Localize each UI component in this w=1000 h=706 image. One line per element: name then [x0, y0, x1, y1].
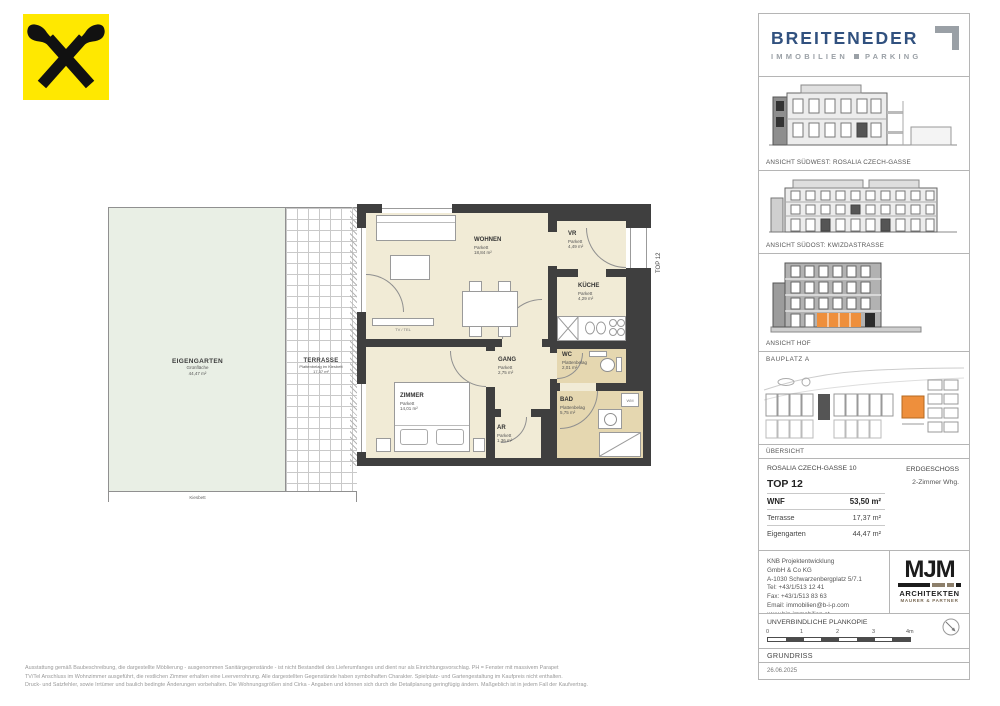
siteplan-caption: ÜBERSICHT: [766, 448, 804, 455]
garden-area: [109, 208, 286, 491]
breiteneder-name: BREITENEDER: [771, 28, 957, 49]
window-top: [382, 204, 452, 213]
elevation-hof-drawing: [765, 257, 961, 339]
label-vr: VRParkett4,49 m²: [568, 231, 583, 250]
contact-email[interactable]: Email: immobilien@b-i-p.com: [767, 602, 883, 611]
mjm-line2: MAURER & PARTNER: [890, 598, 969, 603]
terrace-area: [286, 208, 357, 491]
toilet-tank: [616, 357, 622, 372]
washing-machine: WM: [621, 393, 639, 407]
tv-tel-label: TV / TEL: [372, 327, 434, 332]
nightstand: [376, 438, 391, 452]
title-block-panel: BREITENEDER IMMOBILIEN PARKING: [758, 14, 970, 680]
gravel-strip: Kiesbett: [109, 491, 356, 502]
date-box: 26.06.2025: [758, 662, 970, 680]
contact-box: KNB Projektentwicklung GmbH & Co KG A-10…: [758, 550, 970, 614]
outdoor-area: EIGENGARTEN Grünfläche 44,47 m² TERRASSE…: [108, 207, 357, 502]
raiffeisen-logo: [22, 14, 110, 100]
wnf-value: 53,50 m²: [850, 497, 881, 506]
separator-square-icon: [854, 54, 859, 59]
elevation-hof: ANSICHT HOF: [758, 253, 970, 352]
breiteneder-logo-box: BREITENEDER IMMOBILIEN PARKING: [758, 13, 970, 77]
opening-gang-ar: [501, 409, 531, 417]
mjm-logo: MJM ARCHITEKTEN MAURER & PARTNER: [889, 551, 969, 613]
mjm-name: MJM: [890, 559, 969, 581]
opening-wohnen-vr: [548, 232, 557, 266]
dining-table: [462, 291, 518, 327]
scale-bar: 0 1 2 3 4m: [767, 629, 917, 647]
elevation-suedost-drawing: [765, 174, 961, 240]
label-zimmer: ZIMMERParkett14,01 m²: [400, 393, 424, 412]
elevation-suedost: ANSICHT SÜDOST: KWIZDASTRASSE: [758, 170, 970, 254]
wnf-label: WNF: [767, 497, 785, 506]
terrace-label: TERRASSE Plattenbelag im Kiesbett 17,37 …: [286, 358, 356, 374]
opening-gang-bad: [560, 383, 596, 391]
label-wohnen: WOHNENParkett18,84 m²: [474, 237, 501, 256]
chair: [469, 326, 482, 337]
terrace-door: [357, 228, 366, 312]
terrasse-label: Terrasse: [767, 513, 795, 522]
washbasin: [598, 409, 622, 429]
wall-hatching: [350, 207, 357, 466]
apartment: TV / TEL WM: [357, 204, 651, 466]
elevation-hof-caption: ANSICHT HOF: [766, 340, 811, 347]
developer-contact: KNB Projektentwicklung GmbH & Co KG A-10…: [759, 551, 889, 613]
siteplan-title: BAUPLATZ A: [766, 356, 810, 363]
raiffeisen-gable-cross-icon: [22, 14, 110, 100]
unit-tag: TOP 12: [656, 253, 662, 273]
floorplan: EIGENGARTEN Grünfläche 44,47 m² TERRASSE…: [100, 195, 680, 510]
disclaimer: Ausstattung gemäß Baubeschreibung, die d…: [25, 664, 590, 690]
siteplan-drawing: [762, 366, 966, 442]
mjm-line1: ARCHITEKTEN: [890, 589, 969, 598]
info-unit-row: TOP 12 2-Zimmer Whg.: [759, 475, 969, 494]
info-garten-row: Eigengarten 44,47 m²: [759, 526, 969, 541]
address: ROSALIA CZECH-GASSE 10: [767, 462, 885, 475]
siteplan-box: BAUPLATZ A ÜBERSICHT: [758, 351, 970, 459]
gravel-label: Kiesbett: [109, 492, 286, 500]
breiteneder-tagline: IMMOBILIEN PARKING: [771, 52, 957, 61]
scale-bar-segments: [767, 637, 911, 642]
opening-gang-wc: [550, 353, 557, 379]
pillow: [436, 429, 464, 445]
mjm-bar-icon: [898, 583, 961, 587]
bathtub: [599, 432, 641, 457]
unit-number: TOP 12: [767, 475, 885, 494]
label-bad: BADPlattenbelag5,75 m²: [560, 397, 585, 416]
elevation-suedost-caption: ANSICHT SÜDOST: KWIZDASTRASSE: [766, 242, 884, 249]
floor-level: ERDGESCHOSS: [885, 462, 959, 473]
garten-value: 44,47 m²: [853, 529, 881, 538]
nightstand: [473, 438, 485, 452]
terrasse-value: 17,37 m²: [853, 513, 881, 522]
sofa: [376, 215, 456, 241]
north-arrow-icon: [941, 617, 961, 637]
opening-vr-kueche: [578, 269, 606, 277]
label-kueche: KÜCHEParkett4,29 m²: [578, 283, 599, 302]
opening-wohnen-gang: [502, 339, 542, 347]
kitchen-fixtures-icon: [558, 317, 625, 340]
garden-label: EIGENGARTEN Grünfläche 44,47 m²: [109, 358, 286, 377]
info-terrasse-row: Terrasse 17,37 m²: [759, 510, 969, 526]
toilet-bowl: [600, 358, 615, 372]
info-address-row: ROSALIA CZECH-GASSE 10 ERDGESCHOSS: [759, 462, 969, 475]
chair: [498, 326, 511, 337]
plan-date: 26.06.2025: [767, 668, 797, 674]
info-wnf-row: WNF 53,50 m²: [759, 494, 969, 510]
entry-door: [626, 228, 651, 268]
unit-info-box: ROSALIA CZECH-GASSE 10 ERDGESCHOSS TOP 1…: [758, 458, 970, 551]
opening-gang-zimmer: [486, 351, 495, 387]
corner-bracket-icon: [935, 26, 959, 50]
coffee-table: [390, 255, 430, 280]
label-ar: ARParkett1,36 m²: [497, 425, 512, 444]
plankopie-box: UNVERBINDLICHE PLANKOPIE 0 1 2 3 4m: [758, 613, 970, 649]
window-zimmer: [357, 384, 366, 452]
plankopie-label: UNVERBINDLICHE PLANKOPIE: [767, 619, 867, 626]
elevation-suedwest-caption: ANSICHT SÜDWEST: ROSALIA CZECH-GASSE: [766, 159, 911, 166]
label-wc: WCPlattenbelag2,01 m²: [562, 352, 587, 371]
elevation-suedwest-drawing: [765, 81, 961, 159]
kitchen-counter: [557, 316, 626, 341]
pillow: [400, 429, 428, 445]
elevation-suedwest: ANSICHT SÜDWEST: ROSALIA CZECH-GASSE: [758, 76, 970, 171]
garten-label: Eigengarten: [767, 529, 806, 538]
sideboard: [372, 318, 434, 326]
wc-shelf: [589, 351, 607, 357]
drawing-type: GRUNDRISS: [767, 651, 813, 660]
drawing-type-box: GRUNDRISS: [758, 648, 970, 663]
label-gang: GANGParkett2,75 m²: [498, 357, 516, 376]
unit-type: 2-Zimmer Whg.: [885, 475, 959, 486]
